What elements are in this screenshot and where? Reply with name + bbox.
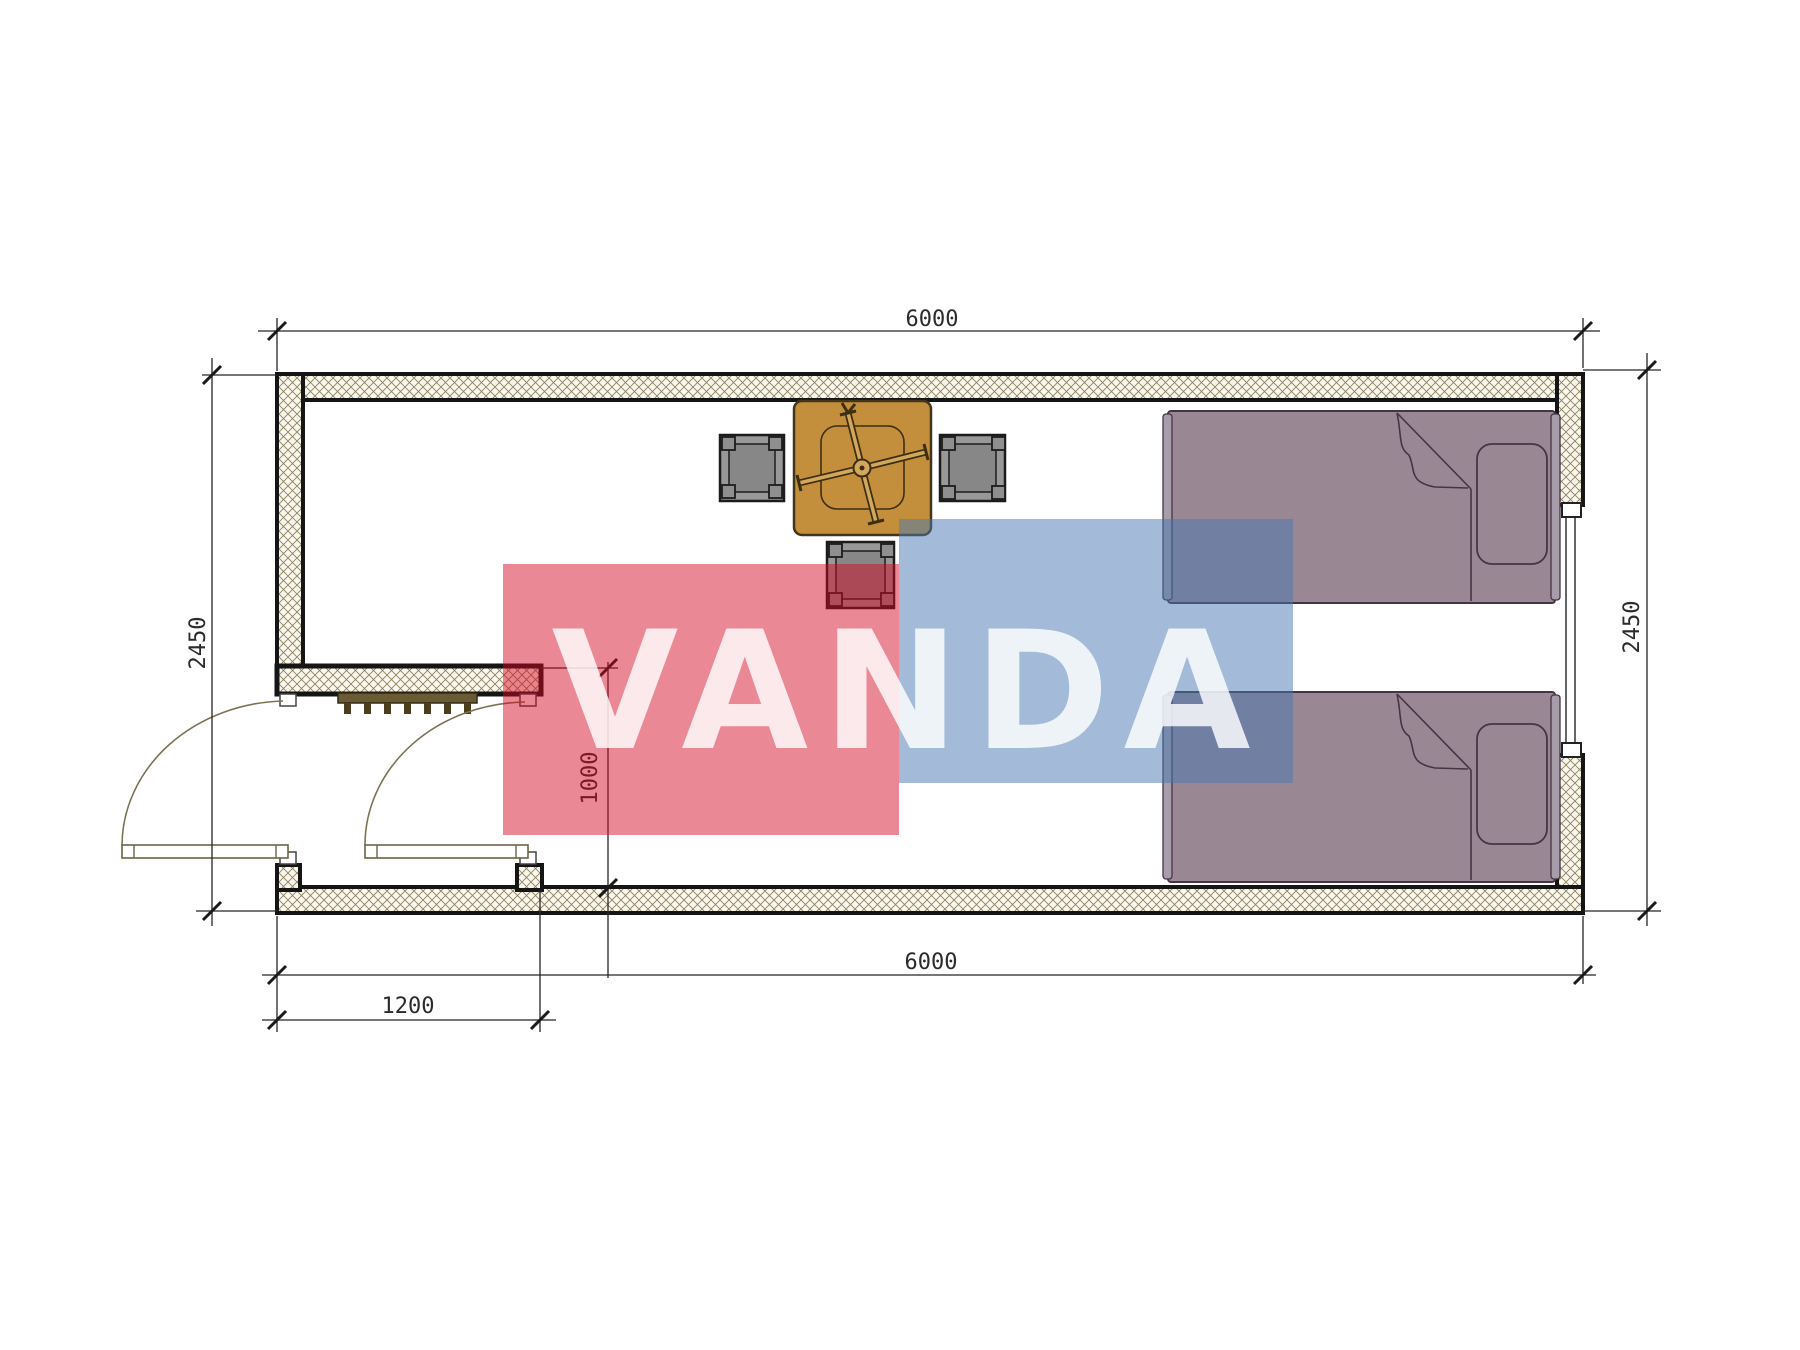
window-jamb-bottom: [1562, 743, 1581, 757]
dimension-label: 2450: [1620, 601, 1645, 654]
exterior-door-swing-arc: [122, 701, 283, 845]
bed-footboard: [1551, 414, 1560, 600]
bottom-wall: [277, 887, 1583, 913]
right-wall-upper: [1557, 374, 1583, 505]
dimension-top-width: 6000: [258, 307, 1600, 371]
bottom-wall-stub-right: [517, 865, 542, 890]
dining-table: [794, 401, 931, 535]
floor-plan-drawing: 6000 6000 1200 2450 2450 1000: [0, 0, 1800, 1350]
watermark-text: VANDA: [551, 596, 1264, 787]
exterior-door-leaf: [122, 845, 288, 858]
interior-door-swing-arc: [365, 702, 525, 845]
top-wall: [277, 374, 1583, 400]
exterior-door: [122, 701, 288, 858]
dimension-label: 6000: [905, 950, 958, 975]
window-glazing: [1566, 517, 1575, 743]
porch-partition-wall: [277, 666, 541, 694]
bottom-wall-stub-left: [277, 865, 300, 890]
doors: [122, 694, 536, 864]
pillow: [1477, 444, 1547, 564]
doormat-grate: [338, 693, 477, 714]
stool-left: [720, 435, 784, 501]
window-jamb-top: [1562, 503, 1581, 517]
window-right-wall: [1562, 503, 1581, 757]
interior-door-leaf: [365, 845, 528, 858]
dimension-label: 6000: [906, 307, 959, 332]
door-frame-bracket: [280, 694, 296, 706]
left-wall: [277, 374, 303, 694]
dimension-right-height: 2450: [1583, 353, 1661, 926]
dimension-porch-door-width: 1200: [262, 994, 556, 1029]
dimension-label: 1200: [382, 994, 435, 1019]
dimension-left-height: 2450: [186, 358, 277, 926]
dimension-label: 2450: [186, 617, 211, 670]
stool-right: [940, 435, 1005, 501]
bed-footboard: [1551, 695, 1560, 879]
pillow: [1477, 724, 1547, 844]
